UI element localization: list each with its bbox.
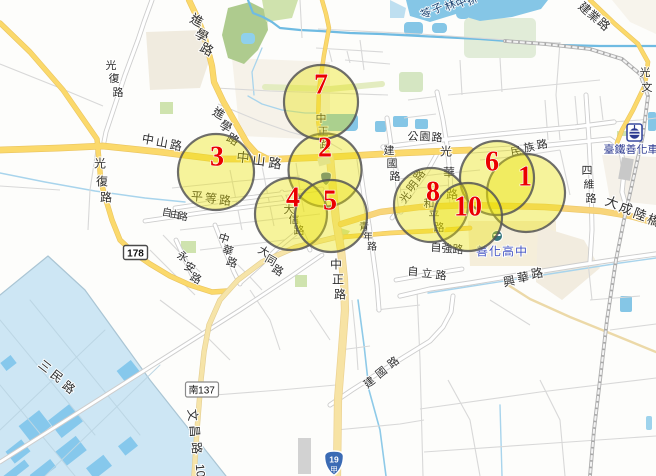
svg-text:4: 4 — [286, 183, 300, 214]
svg-text:137: 137 — [198, 386, 215, 397]
svg-text:7: 7 — [314, 70, 328, 101]
svg-text:5: 5 — [323, 186, 337, 217]
svg-text:6: 6 — [485, 147, 499, 178]
svg-text:10: 10 — [193, 463, 208, 476]
svg-text:178: 178 — [127, 249, 144, 260]
svg-text:2: 2 — [318, 133, 332, 164]
svg-text:1: 1 — [518, 162, 532, 193]
svg-text:8: 8 — [426, 177, 440, 208]
svg-text:10: 10 — [454, 192, 482, 223]
svg-text:3: 3 — [210, 142, 224, 173]
svg-text:19: 19 — [329, 455, 339, 465]
